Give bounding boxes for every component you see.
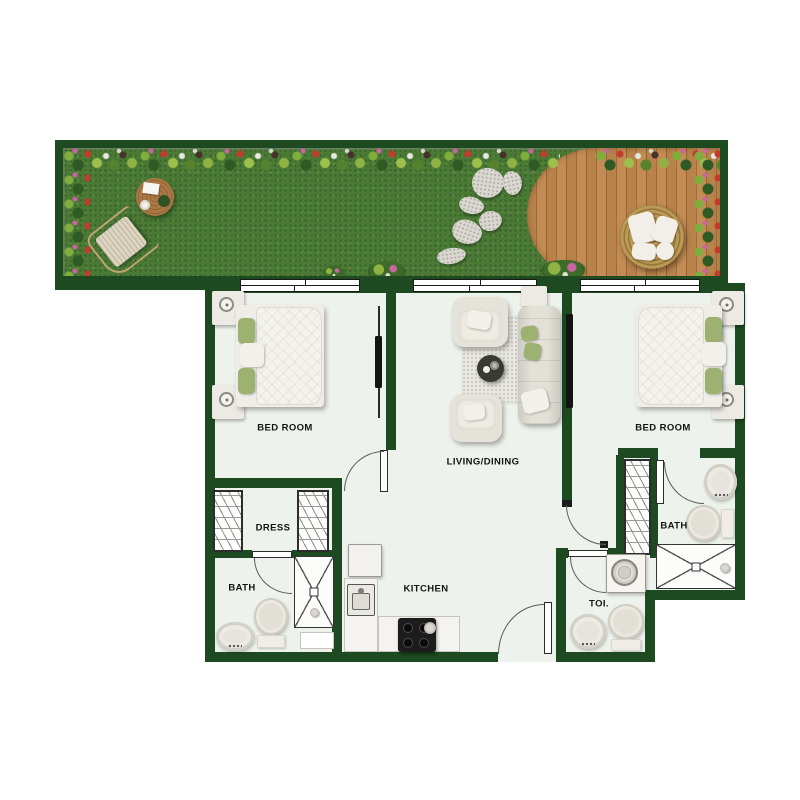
coffee-cup: [140, 200, 150, 210]
wall-bottom-east: [556, 652, 655, 662]
table-cup: [483, 366, 490, 373]
burner: [403, 638, 413, 648]
wall-left: [205, 283, 215, 662]
wall-hall-a: [556, 548, 568, 558]
flower-border-right: [693, 148, 720, 282]
bed-pillow-green: [238, 368, 255, 394]
sink-tub: [352, 593, 370, 610]
toilet-tank: [257, 635, 285, 648]
armchair-pillow: [466, 309, 493, 331]
living-dining-label: LIVING/DINING: [447, 457, 520, 468]
dress-label: DRESS: [256, 523, 291, 534]
table-plant: [158, 195, 170, 207]
wall-bottom-west: [205, 652, 498, 662]
floor-plan-canvas: BED ROOM BED ROOM LIVING/DINING DRESS BA…: [0, 0, 800, 800]
tv-bedroom-right: [566, 314, 573, 408]
daybed-pillow: [656, 242, 674, 260]
coffee-table: [477, 355, 504, 382]
window-panel: [634, 285, 700, 292]
sofa-pillow-green: [523, 342, 543, 362]
burner: [403, 623, 413, 633]
table-cup: [490, 361, 499, 370]
bed-pillow-green: [238, 318, 255, 344]
wardrobe-dress-right: [297, 490, 329, 552]
armchair: [452, 297, 508, 347]
wall-dress-top: [215, 478, 332, 488]
toilet-tank: [721, 509, 734, 538]
toilet-tank: [611, 639, 641, 651]
washer-drum: [611, 559, 638, 586]
door-toi: [568, 550, 608, 557]
wall-right-upper: [735, 283, 745, 600]
bath-right-label: BATH: [660, 521, 687, 532]
wall-bedroom-right-south-a: [618, 448, 658, 458]
garden-terrace: [55, 140, 728, 290]
shower-left: [294, 556, 334, 628]
garden-table: [136, 178, 174, 216]
sliding-door-living: [413, 279, 537, 292]
toilet-bowl: [608, 604, 644, 639]
kitchen-label: KITCHEN: [403, 584, 448, 595]
wall-toi-west: [556, 558, 566, 652]
sofa-pillow-green: [520, 325, 539, 342]
door-bath-right: [656, 460, 664, 504]
bedroom-right-label: BED ROOM: [635, 423, 690, 434]
washing-machine: [606, 554, 646, 593]
sliding-door-bedroom-left: [240, 279, 360, 292]
bed-pillow-white: [702, 342, 726, 366]
bed-duvet: [638, 307, 704, 405]
flower-border-left: [63, 148, 90, 282]
shower-knob: [310, 608, 319, 617]
bed-pillow-green: [705, 317, 722, 343]
door-entrance: [544, 602, 552, 654]
napkin: [142, 182, 159, 195]
bed-duvet: [256, 307, 322, 405]
wall-bedroom-left-east: [386, 293, 396, 450]
refrigerator: [348, 544, 382, 577]
window-panel: [294, 285, 360, 292]
daybed-cushion: [631, 242, 657, 261]
armchair-pillow: [462, 403, 486, 422]
bath-vanity: [300, 632, 334, 649]
toilet-label: TOI.: [589, 599, 609, 610]
wall-right-lower: [645, 590, 655, 662]
wall-bath-right-bottom: [655, 590, 745, 600]
wardrobe-dress-left: [213, 490, 243, 552]
wardrobe-hall: [624, 459, 651, 555]
bed-pillow-white: [240, 343, 264, 367]
round-daybed: [620, 205, 684, 269]
bed-pillow-green: [705, 368, 722, 394]
side-table: [521, 286, 547, 306]
sliding-door-bedroom-right: [580, 279, 700, 292]
shower-knob: [720, 563, 730, 573]
toilet-bowl: [686, 505, 721, 541]
door-bath-left: [252, 551, 292, 558]
toilet-bowl: [254, 598, 288, 635]
lamp: [219, 392, 234, 407]
bath-left-label: BATH: [228, 583, 255, 594]
kitchen-sink: [347, 584, 375, 616]
washbasin: [704, 464, 737, 500]
sink-tap: [358, 588, 364, 594]
armchair: [450, 394, 502, 442]
lamp: [219, 297, 234, 312]
burner: [419, 638, 429, 648]
wall-closet-west: [616, 455, 624, 558]
hob-knob: [424, 622, 436, 634]
bedroom-left-label: BED ROOM: [257, 423, 312, 434]
cooktop: [398, 618, 436, 652]
washbasin: [216, 622, 254, 651]
washbasin: [570, 614, 606, 649]
wall-bedroom-right-south-b: [700, 448, 745, 458]
tv-bedroom-left: [375, 336, 382, 388]
